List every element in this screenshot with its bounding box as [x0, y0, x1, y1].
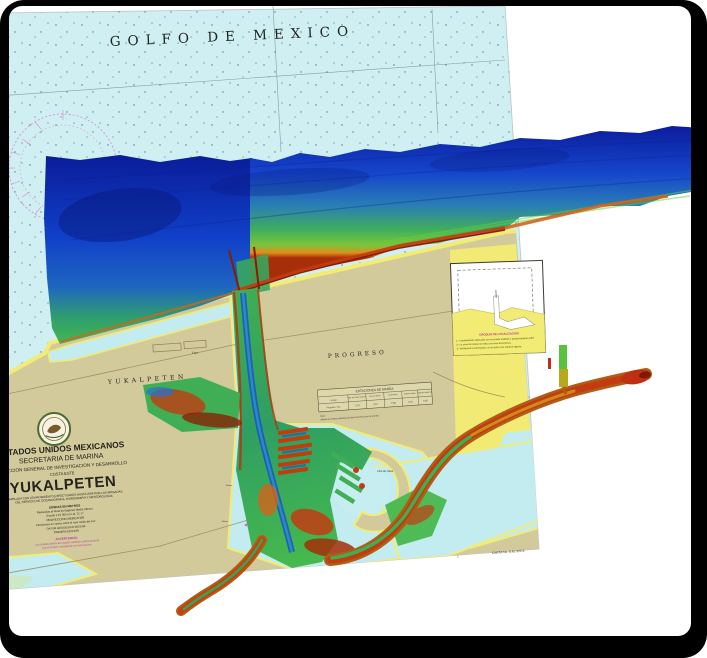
inset-map: CROQUIS DE LOCALIZACION 1.- Levantamient… — [450, 260, 545, 355]
label-club: Club de Yates — [377, 469, 394, 473]
coat-of-arms-icon — [37, 412, 71, 446]
svg-text:LUGAR: LUGAR — [330, 399, 338, 403]
survey-pier-bar — [548, 345, 568, 394]
screenshot-root: GOLFO DE MEXICO — [0, 0, 707, 658]
chart-viewport: GOLFO DE MEXICO — [9, 6, 691, 636]
svg-text:Baliza: Baliza — [222, 521, 229, 523]
label-faro: Faro — [192, 351, 199, 355]
nautical-chart-canvas: GOLFO DE MEXICO — [9, 6, 691, 636]
svg-text:Baliza: Baliza — [226, 485, 233, 487]
svg-text:Nota:: Nota: — [320, 414, 326, 417]
